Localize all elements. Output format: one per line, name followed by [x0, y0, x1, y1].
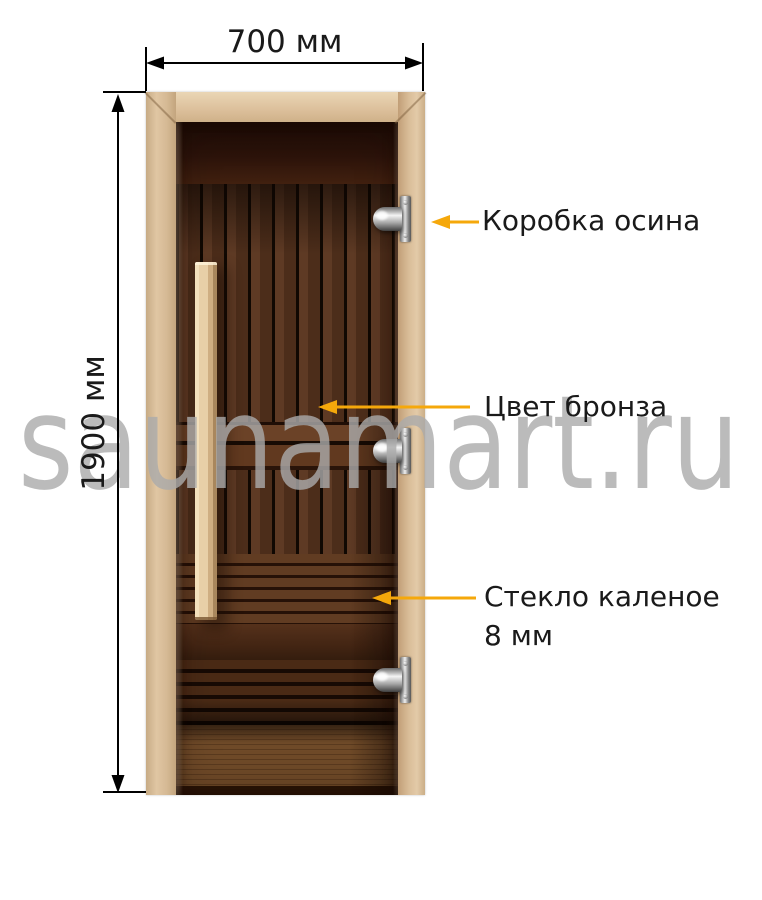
annotation-arrows: [0, 0, 762, 900]
width-dimension-label: 700 мм: [146, 24, 423, 60]
product-diagram: saunamart.ru 700 мм 1900 мм Коробка осин…: [0, 0, 762, 900]
callout-label-glass-line1: Стекло каленое: [484, 577, 720, 616]
callout-label-glass: Стекло каленое 8 мм: [484, 577, 720, 655]
callout-label-glass-line2: 8 мм: [484, 616, 720, 655]
callout-arrowhead-color-icon: [318, 400, 337, 414]
callout-label-color: Цвет бронза: [484, 387, 667, 426]
callout-label-frame: Коробка осина: [482, 201, 700, 240]
height-dimension-label: 1900 мм: [76, 355, 112, 491]
height-arrowhead-top-icon: [112, 94, 125, 112]
callout-arrowhead-glass-icon: [372, 591, 391, 605]
callout-arrowhead-frame-icon: [431, 215, 450, 229]
height-arrowhead-bottom-icon: [112, 775, 125, 793]
